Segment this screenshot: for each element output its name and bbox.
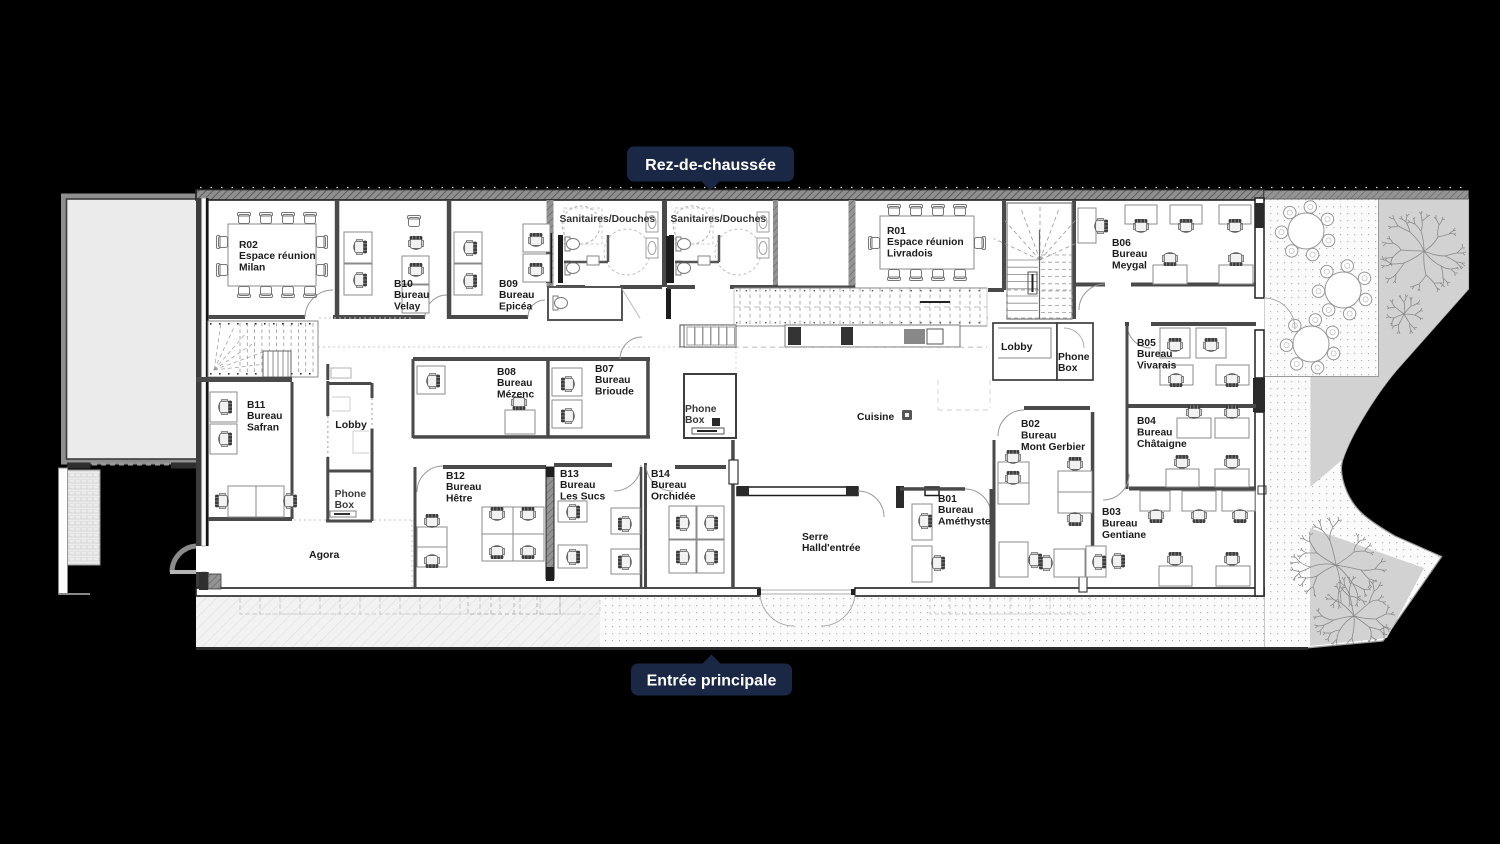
svg-text:B07: B07 [595,364,614,375]
svg-text:Box: Box [685,415,705,426]
svg-text:Bureau: Bureau [394,290,429,301]
svg-text:Châtaigne: Châtaigne [1137,439,1187,450]
svg-text:Espace réunion: Espace réunion [239,251,316,262]
svg-text:Safran: Safran [247,422,279,433]
svg-text:R02: R02 [239,240,258,251]
svg-text:Bureau: Bureau [446,482,481,493]
svg-text:Gentiane: Gentiane [1102,530,1146,541]
svg-text:Bureau: Bureau [1112,249,1147,260]
svg-text:Velay: Velay [394,301,421,312]
svg-text:Lobby: Lobby [1001,341,1033,353]
svg-text:Bureau: Bureau [595,375,630,386]
svg-text:Entrée principale: Entrée principale [647,673,777,690]
svg-text:Hêtre: Hêtre [446,493,473,504]
svg-text:Rez-de-chaussée: Rez-de-chaussée [645,157,776,174]
svg-text:Box: Box [335,500,355,511]
svg-text:B11: B11 [247,400,266,411]
svg-text:Phone: Phone [685,404,717,415]
svg-text:Phone: Phone [335,489,367,500]
svg-text:Phone: Phone [1058,352,1090,363]
svg-text:Améthyste: Améthyste [938,516,991,527]
svg-text:Bureau: Bureau [1137,349,1172,360]
svg-text:B06: B06 [1112,238,1131,249]
svg-text:Bureau: Bureau [247,411,282,422]
svg-text:Lobby: Lobby [335,419,367,431]
svg-text:Epicéa: Epicéa [499,301,532,312]
svg-text:B03: B03 [1102,507,1121,518]
svg-text:Milan: Milan [239,262,265,273]
svg-text:Serre: Serre [802,532,829,543]
svg-text:Bureau: Bureau [1021,431,1056,442]
svg-text:Bureau: Bureau [938,505,973,516]
svg-text:B04: B04 [1137,416,1156,427]
svg-text:Mézenc: Mézenc [497,389,534,400]
svg-text:B13: B13 [560,469,579,480]
svg-text:B14: B14 [651,469,670,480]
svg-text:Box: Box [1058,363,1078,374]
svg-text:Brioude: Brioude [595,386,634,397]
svg-text:Orchidée: Orchidée [651,491,696,502]
svg-text:B05: B05 [1137,338,1156,349]
svg-text:Bureau: Bureau [1102,519,1137,530]
svg-text:Meygal: Meygal [1112,260,1147,271]
svg-text:Sanitaires/Douches: Sanitaires/Douches [560,214,656,225]
svg-text:B10: B10 [394,279,413,290]
svg-text:Bureau: Bureau [497,378,532,389]
svg-text:Livradois: Livradois [887,248,933,259]
svg-text:B01: B01 [938,494,957,505]
svg-text:Mont Gerbier: Mont Gerbier [1021,442,1085,453]
svg-text:Sanitaires/Douches: Sanitaires/Douches [671,214,767,225]
svg-text:Les Sucs: Les Sucs [560,491,605,502]
svg-text:Bureau: Bureau [560,480,595,491]
svg-text:B02: B02 [1021,419,1040,430]
svg-text:Halld'entrée: Halld'entrée [802,543,861,554]
svg-text:Bureau: Bureau [1137,428,1172,439]
svg-text:R01: R01 [887,226,906,237]
svg-text:B12: B12 [446,471,465,482]
svg-text:Cuisine: Cuisine [857,412,894,423]
svg-text:B09: B09 [499,279,518,290]
svg-text:B08: B08 [497,367,516,378]
svg-text:Vivarais: Vivarais [1137,360,1177,371]
svg-text:Agora: Agora [309,549,339,561]
svg-text:Bureau: Bureau [651,480,686,491]
svg-text:Bureau: Bureau [499,290,534,301]
svg-text:Espace réunion: Espace réunion [887,237,964,248]
